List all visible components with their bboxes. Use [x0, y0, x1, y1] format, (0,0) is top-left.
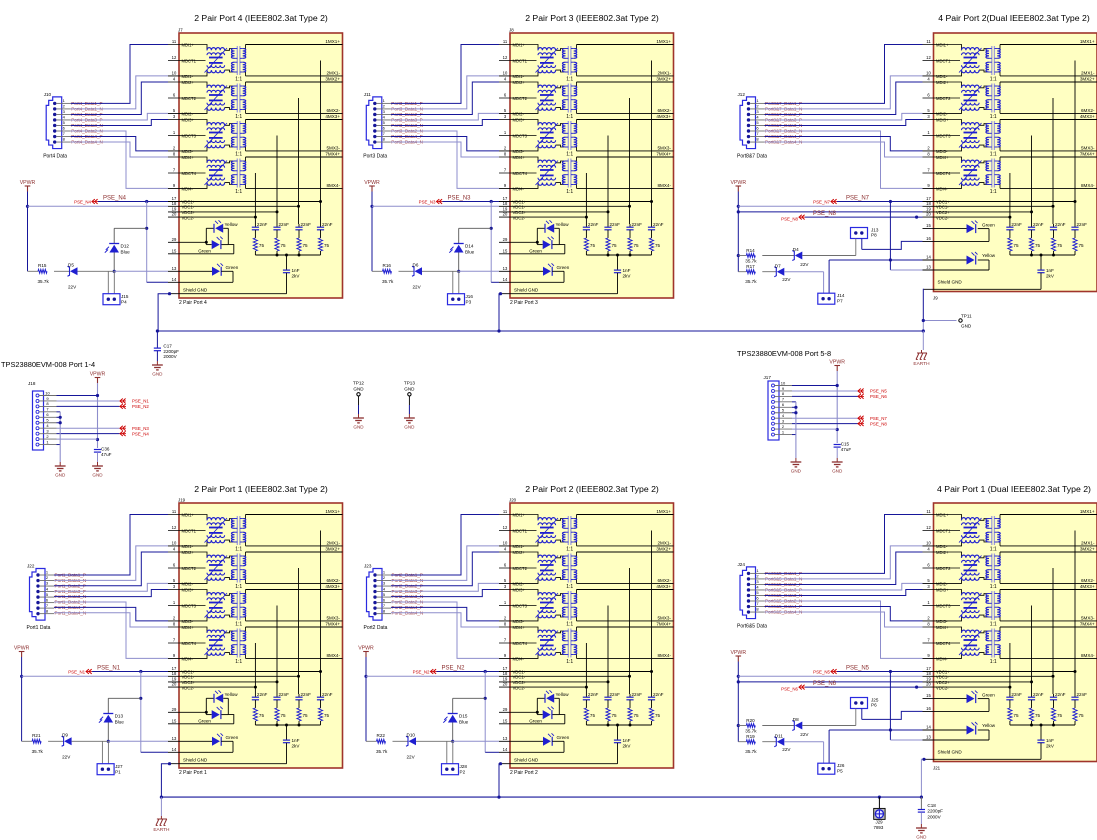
svg-text:TP11: TP11: [961, 314, 972, 319]
svg-text:J20: J20: [509, 498, 517, 503]
svg-text:35.7k: 35.7k: [32, 749, 44, 754]
svg-text:GND: GND: [404, 386, 415, 391]
svg-text:2 Pair Port 3: 2 Pair Port 3: [510, 300, 538, 306]
svg-text:2 Pair Port 4 (IEEE802.3at Typ: 2 Pair Port 4 (IEEE802.3at Type 2): [194, 13, 328, 23]
svg-text:EARTH: EARTH: [153, 827, 170, 833]
svg-text:VPWR: VPWR: [364, 180, 380, 186]
svg-text:P5: P5: [837, 769, 843, 774]
svg-text:J16: J16: [466, 294, 474, 299]
svg-text:PSE_N8: PSE_N8: [870, 421, 887, 426]
svg-text:D13: D13: [115, 714, 124, 719]
svg-text:TPS23880EVM-008 Port 1-4: TPS23880EVM-008 Port 1-4: [1, 360, 95, 369]
svg-text:PSE_N5: PSE_N5: [870, 389, 887, 394]
svg-text:GND: GND: [353, 425, 364, 430]
svg-text:35.7k: 35.7k: [745, 728, 757, 733]
svg-text:35.7k: 35.7k: [745, 749, 757, 754]
svg-text:R19: R19: [746, 734, 755, 739]
svg-text:35.7k: 35.7k: [745, 279, 757, 284]
svg-text:GND: GND: [791, 469, 802, 474]
svg-text:PSE_N1: PSE_N1: [132, 399, 149, 404]
svg-text:J22: J22: [27, 564, 35, 569]
svg-text:J23: J23: [364, 564, 372, 569]
svg-text:D8: D8: [793, 717, 799, 722]
svg-text:C36: C36: [101, 447, 110, 452]
svg-text:Port6&5 Data: Port6&5 Data: [737, 623, 767, 629]
svg-text:J21: J21: [933, 766, 941, 771]
svg-text:GND: GND: [832, 469, 843, 474]
svg-text:J19: J19: [178, 498, 186, 503]
svg-text:GND: GND: [916, 835, 927, 840]
svg-text:TP12: TP12: [353, 380, 364, 385]
svg-text:R22: R22: [377, 733, 386, 738]
svg-text:PSE_N6: PSE_N6: [870, 394, 887, 399]
svg-text:J10: J10: [44, 92, 52, 97]
svg-text:J12: J12: [738, 92, 746, 97]
svg-text:J28: J28: [460, 764, 468, 769]
svg-text:J18: J18: [28, 381, 36, 386]
svg-text:Port2 Data: Port2 Data: [364, 625, 388, 631]
svg-text:D15: D15: [459, 714, 468, 719]
svg-text:C15: C15: [841, 442, 850, 447]
svg-text:2000V: 2000V: [163, 354, 177, 359]
svg-text:PSE_N3: PSE_N3: [419, 199, 436, 204]
svg-text:7893: 7893: [874, 825, 884, 830]
svg-text:22V: 22V: [413, 285, 422, 290]
svg-text:D7: D7: [775, 264, 781, 269]
svg-text:R21: R21: [32, 733, 41, 738]
svg-text:P1: P1: [115, 770, 121, 775]
svg-text:P6: P6: [871, 703, 877, 708]
svg-text:PSE_N1: PSE_N1: [97, 666, 121, 672]
svg-text:VPWR: VPWR: [358, 646, 374, 652]
svg-text:VPWR: VPWR: [90, 372, 106, 378]
svg-text:VPWR: VPWR: [731, 180, 747, 186]
svg-text:D10: D10: [407, 733, 416, 738]
svg-text:PSE_N5: PSE_N5: [813, 670, 830, 675]
svg-text:GND: GND: [353, 386, 364, 391]
svg-text:J26: J26: [837, 763, 845, 768]
svg-text:2 Pair Port 1 (IEEE802.3at Typ: 2 Pair Port 1 (IEEE802.3at Type 2): [194, 484, 328, 494]
svg-text:P7: P7: [837, 299, 843, 304]
svg-text:PSE_N8: PSE_N8: [813, 211, 837, 217]
svg-text:R20: R20: [746, 718, 755, 723]
svg-text:2 Pair Port 1: 2 Pair Port 1: [179, 770, 207, 776]
svg-text:2200pF: 2200pF: [163, 349, 179, 354]
svg-text:PSE_N2: PSE_N2: [442, 666, 466, 672]
svg-text:PSE_N2: PSE_N2: [413, 669, 430, 674]
svg-text:GND: GND: [961, 324, 972, 329]
svg-text:P3: P3: [466, 300, 472, 305]
svg-text:Blue: Blue: [121, 250, 131, 255]
svg-text:J7: J7: [178, 28, 183, 33]
svg-text:47uF: 47uF: [841, 447, 852, 452]
svg-text:4 Pair Port 2(Dual IEEE802.3at: 4 Pair Port 2(Dual IEEE802.3at Type 2): [938, 13, 1090, 23]
svg-text:R17: R17: [746, 264, 755, 269]
svg-text:J8: J8: [509, 28, 514, 33]
svg-text:J9: J9: [933, 296, 938, 301]
svg-text:D5: D5: [68, 263, 74, 268]
svg-text:R15: R15: [38, 263, 47, 268]
svg-text:P4: P4: [121, 300, 127, 305]
svg-text:2 Pair Port 2 (IEEE802.3at Typ: 2 Pair Port 2 (IEEE802.3at Type 2): [525, 484, 659, 494]
svg-text:C17: C17: [163, 344, 172, 349]
svg-text:Port8&7 Data: Port8&7 Data: [737, 153, 767, 159]
svg-text:2 Pair Port 3 (IEEE802.3at Typ: 2 Pair Port 3 (IEEE802.3at Type 2): [525, 13, 659, 23]
svg-text:Port4 Data: Port4 Data: [43, 153, 67, 159]
svg-text:PSE_N4: PSE_N4: [132, 431, 149, 436]
svg-text:VPWR: VPWR: [731, 650, 747, 656]
svg-text:Port1 Data: Port1 Data: [27, 625, 51, 631]
svg-text:22V: 22V: [782, 747, 791, 752]
svg-text:PSE_N7: PSE_N7: [870, 416, 887, 421]
svg-text:PSE_N6: PSE_N6: [781, 686, 798, 691]
svg-text:4 Pair Port 1 (Dual IEEE802.3a: 4 Pair Port 1 (Dual IEEE802.3at Type 2): [937, 484, 1091, 494]
svg-text:PSE_N3: PSE_N3: [132, 426, 149, 431]
svg-text:2000V: 2000V: [927, 814, 941, 819]
svg-text:P8: P8: [871, 233, 877, 238]
svg-text:VPWR: VPWR: [14, 646, 30, 652]
svg-text:PSE_N7: PSE_N7: [813, 200, 830, 205]
svg-text:D6: D6: [413, 263, 419, 268]
svg-text:D14: D14: [465, 244, 474, 249]
svg-text:GND: GND: [152, 372, 163, 377]
svg-text:Port3 Data: Port3 Data: [363, 153, 387, 159]
svg-text:2200pF: 2200pF: [927, 809, 943, 814]
svg-text:J24: J24: [738, 562, 746, 567]
svg-text:PSE_N4: PSE_N4: [103, 196, 127, 202]
svg-text:VPWR: VPWR: [829, 360, 845, 366]
svg-text:J29: J29: [876, 820, 884, 825]
svg-text:Blue: Blue: [465, 250, 475, 255]
svg-text:2 Pair Port 2: 2 Pair Port 2: [510, 770, 538, 776]
svg-text:R16: R16: [383, 263, 392, 268]
svg-text:35.7k: 35.7k: [376, 749, 388, 754]
svg-text:PSE_N3: PSE_N3: [448, 196, 472, 202]
svg-text:2 Pair Port 4: 2 Pair Port 4: [179, 300, 207, 306]
svg-text:J27: J27: [115, 764, 123, 769]
svg-text:EARTH: EARTH: [913, 361, 930, 367]
svg-text:VPWR: VPWR: [20, 180, 36, 186]
svg-text:GND: GND: [92, 473, 103, 478]
svg-text:J17: J17: [764, 375, 772, 380]
svg-text:22V: 22V: [800, 262, 809, 267]
svg-text:PSE_N5: PSE_N5: [846, 666, 870, 672]
svg-text:GND: GND: [55, 473, 66, 478]
svg-text:P2: P2: [460, 770, 466, 775]
svg-text:PSE_N1: PSE_N1: [68, 669, 85, 674]
svg-text:J14: J14: [837, 293, 845, 298]
svg-text:J15: J15: [121, 294, 129, 299]
svg-text:22V: 22V: [68, 285, 77, 290]
svg-text:22V: 22V: [782, 277, 791, 282]
svg-text:35.7k: 35.7k: [382, 279, 394, 284]
svg-text:D4: D4: [793, 247, 799, 252]
svg-text:C18: C18: [927, 803, 936, 808]
svg-text:PSE_N6: PSE_N6: [813, 681, 837, 687]
svg-text:47uF: 47uF: [101, 452, 112, 457]
svg-text:22V: 22V: [62, 755, 71, 760]
svg-text:22V: 22V: [800, 732, 809, 737]
svg-text:PSE_N2: PSE_N2: [132, 404, 149, 409]
svg-text:D11: D11: [775, 734, 784, 739]
svg-text:J11: J11: [364, 92, 372, 97]
svg-text:Blue: Blue: [459, 720, 469, 725]
svg-text:PSE_N8: PSE_N8: [781, 216, 798, 221]
svg-text:R14: R14: [746, 248, 755, 253]
svg-text:TP13: TP13: [404, 380, 415, 385]
svg-text:PSE_N4: PSE_N4: [74, 199, 91, 204]
svg-text:Blue: Blue: [115, 720, 125, 725]
svg-text:D9: D9: [62, 733, 68, 738]
svg-text:GND: GND: [404, 425, 415, 430]
svg-text:PSE_N7: PSE_N7: [846, 196, 870, 202]
svg-text:D12: D12: [121, 244, 130, 249]
svg-text:22V: 22V: [407, 755, 416, 760]
svg-text:35.7k: 35.7k: [745, 258, 757, 263]
svg-text:35.7k: 35.7k: [38, 279, 50, 284]
svg-text:TPS23880EVM-008 Port 5-8: TPS23880EVM-008 Port 5-8: [737, 349, 831, 358]
